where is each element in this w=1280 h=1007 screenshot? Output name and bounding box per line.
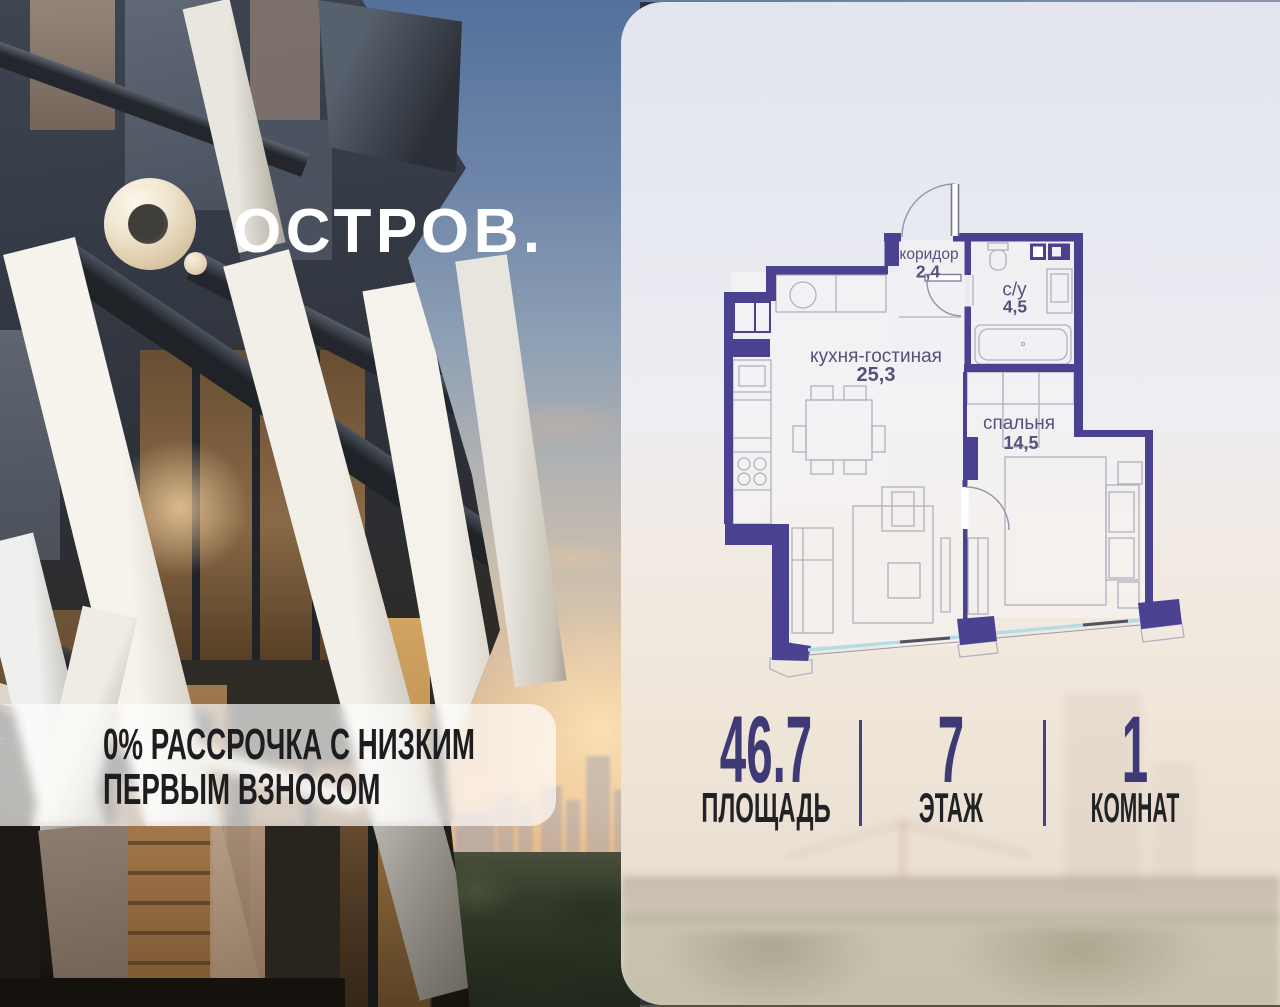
svg-text:коридор: коридор [899, 246, 958, 263]
svg-text:25,3: 25,3 [857, 364, 896, 386]
svg-text:4,5: 4,5 [1003, 297, 1028, 317]
svg-text:2,4: 2,4 [916, 262, 941, 282]
svg-text:14,5: 14,5 [1003, 433, 1038, 453]
svg-text:спальня: спальня [983, 413, 1055, 434]
